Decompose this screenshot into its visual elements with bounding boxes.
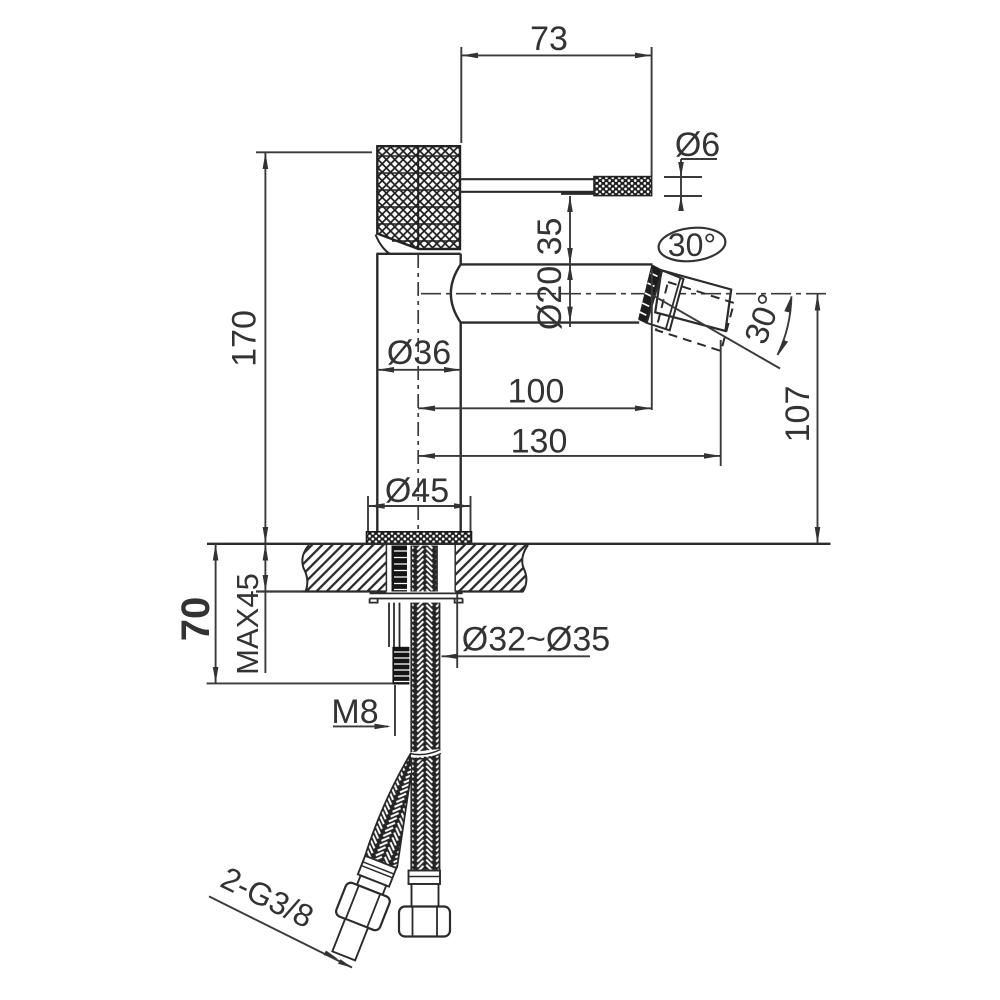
svg-text:Ø45: Ø45 [385,472,449,510]
svg-text:130: 130 [511,423,568,461]
svg-text:73: 73 [530,20,568,58]
svg-text:M8: M8 [331,693,378,731]
svg-text:170: 170 [226,310,264,367]
svg-text:Ø36: Ø36 [387,334,451,372]
svg-text:70: 70 [174,597,218,642]
svg-text:100: 100 [508,373,565,411]
svg-text:35: 35 [531,218,569,256]
svg-text:30°: 30° [668,227,716,263]
svg-text:Ø20: Ø20 [531,266,569,330]
svg-text:MAX45: MAX45 [230,573,265,675]
svg-text:Ø32~Ø35: Ø32~Ø35 [462,621,610,659]
svg-text:107: 107 [779,386,817,443]
